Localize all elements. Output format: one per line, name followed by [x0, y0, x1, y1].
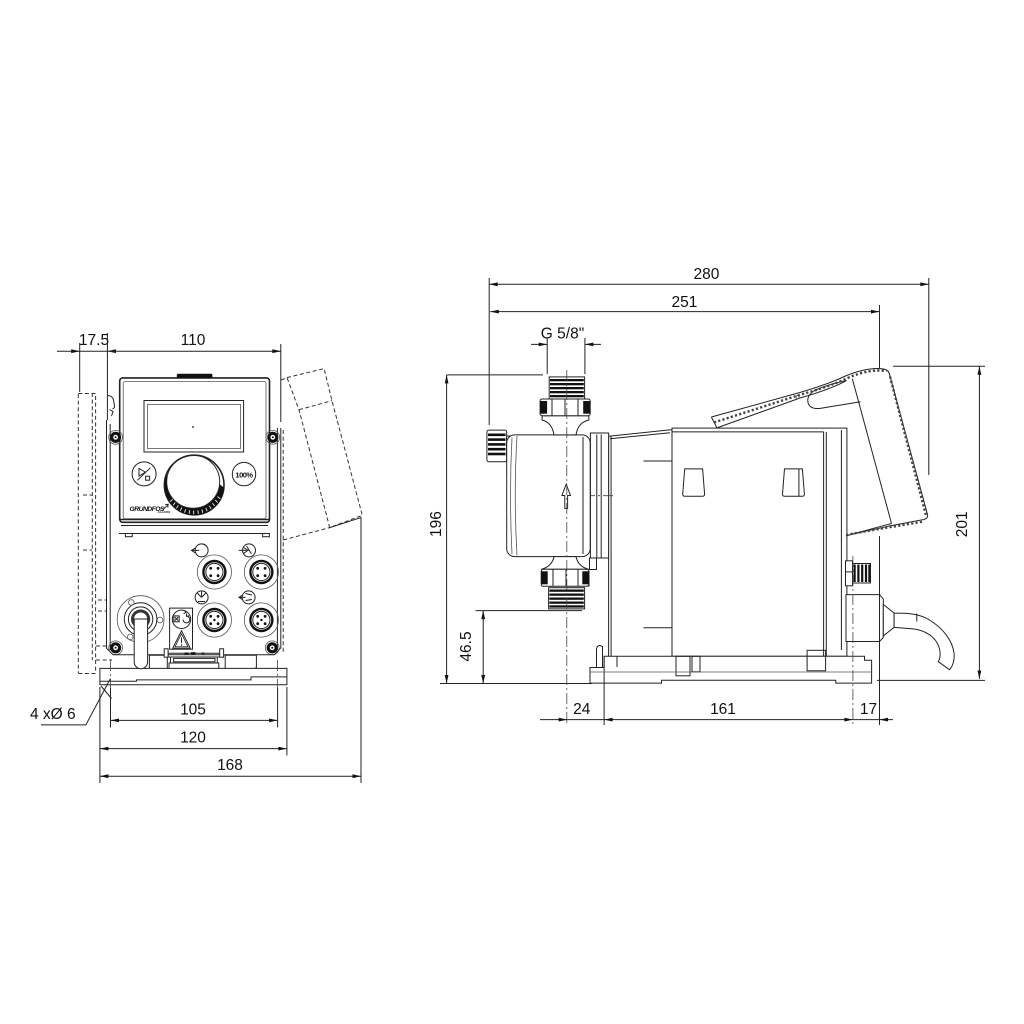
svg-text:105: 105: [180, 702, 206, 719]
svg-text:201: 201: [954, 511, 971, 537]
svg-text:110: 110: [181, 332, 206, 349]
svg-text:24: 24: [573, 701, 591, 718]
svg-text:17.5: 17.5: [79, 332, 109, 349]
svg-text:251: 251: [671, 294, 697, 311]
svg-text:46.5: 46.5: [458, 631, 475, 661]
svg-text:100%: 100%: [235, 471, 253, 480]
svg-text:ALLDOS: ALLDOS: [157, 510, 172, 514]
svg-text:4 xØ 6: 4 xØ 6: [30, 706, 76, 723]
svg-text:120: 120: [180, 730, 206, 747]
svg-text:161: 161: [710, 701, 736, 718]
svg-text:G 5/8": G 5/8": [541, 326, 584, 343]
svg-text:17: 17: [860, 701, 877, 718]
svg-text:280: 280: [693, 266, 719, 283]
svg-text:196: 196: [428, 511, 445, 537]
svg-text:168: 168: [217, 757, 243, 774]
